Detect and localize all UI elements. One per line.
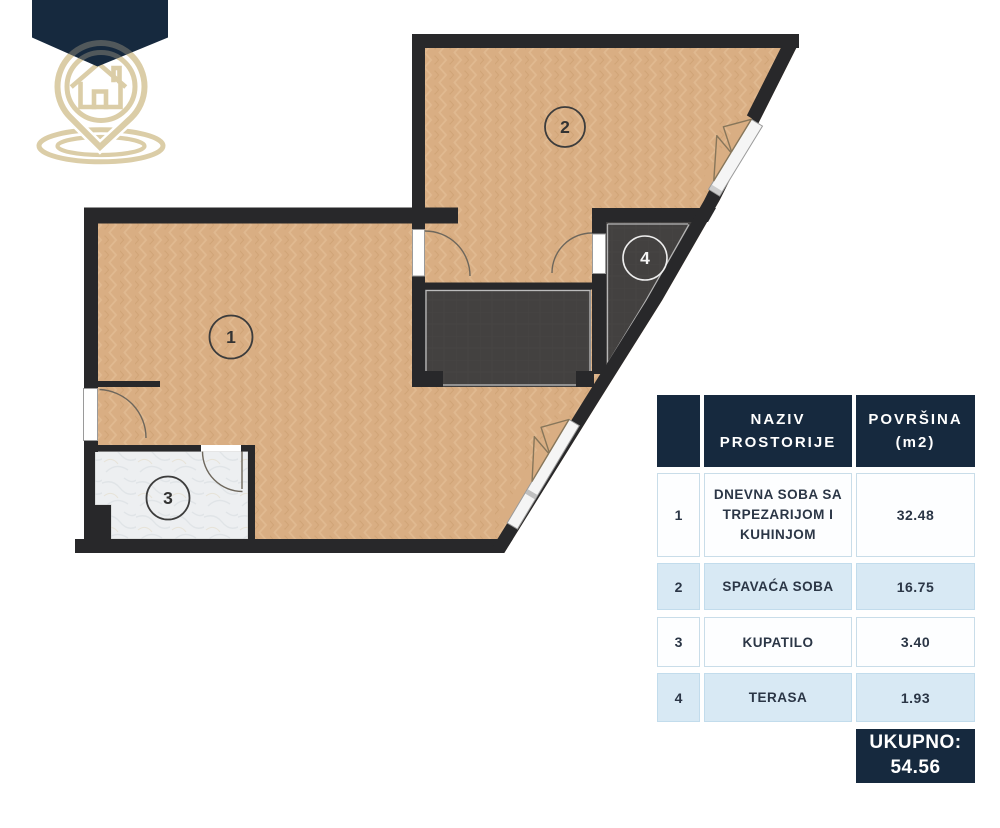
svg-text:3: 3 [163, 488, 173, 508]
svg-text:1: 1 [226, 327, 236, 347]
svg-text:2: 2 [560, 117, 570, 137]
svg-text:4: 4 [640, 248, 650, 268]
